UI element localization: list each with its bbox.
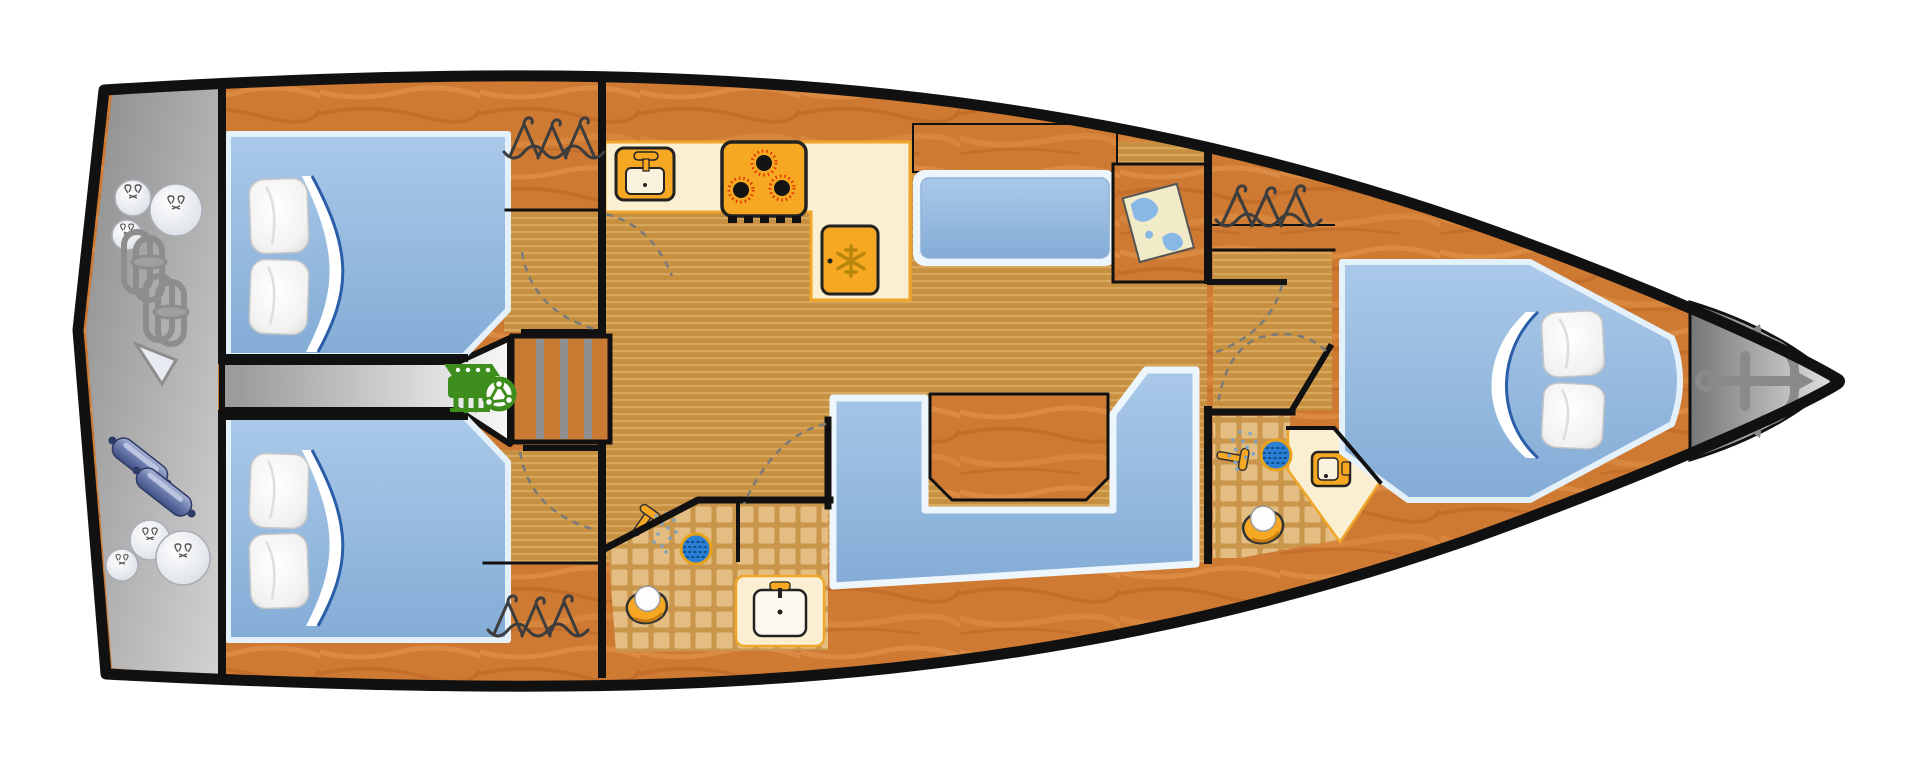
pillow (1541, 382, 1605, 449)
drain-icon (681, 534, 711, 564)
drain-icon (1261, 440, 1291, 470)
zone-aft-head (608, 502, 828, 652)
galley-refrigerator (822, 226, 878, 294)
pillow (249, 533, 310, 609)
settee-back-shelf (913, 124, 1117, 172)
yacht-floor-plan-page: Top-down interior layout plan of a saili… (0, 0, 1920, 774)
zone-aft-cabin-top (228, 134, 508, 356)
dining-table (930, 394, 1108, 500)
straight-settee (913, 170, 1117, 266)
yacht-floor-plan: Top-down interior layout plan of a saili… (0, 0, 1920, 774)
zone-aft-cabin-bottom (228, 416, 508, 640)
pillow (249, 259, 310, 335)
pillow (249, 178, 310, 254)
zone-nav-station (1113, 164, 1207, 282)
aft-head-washbasin (754, 582, 806, 636)
galley-stove (722, 142, 806, 223)
galley-sink (616, 148, 674, 200)
companionway-steps (512, 336, 610, 442)
forward-vestibule-floor (1213, 252, 1332, 410)
pillow (1541, 310, 1605, 377)
pillow (249, 453, 310, 529)
aft-cabin-top-floor (504, 212, 602, 332)
